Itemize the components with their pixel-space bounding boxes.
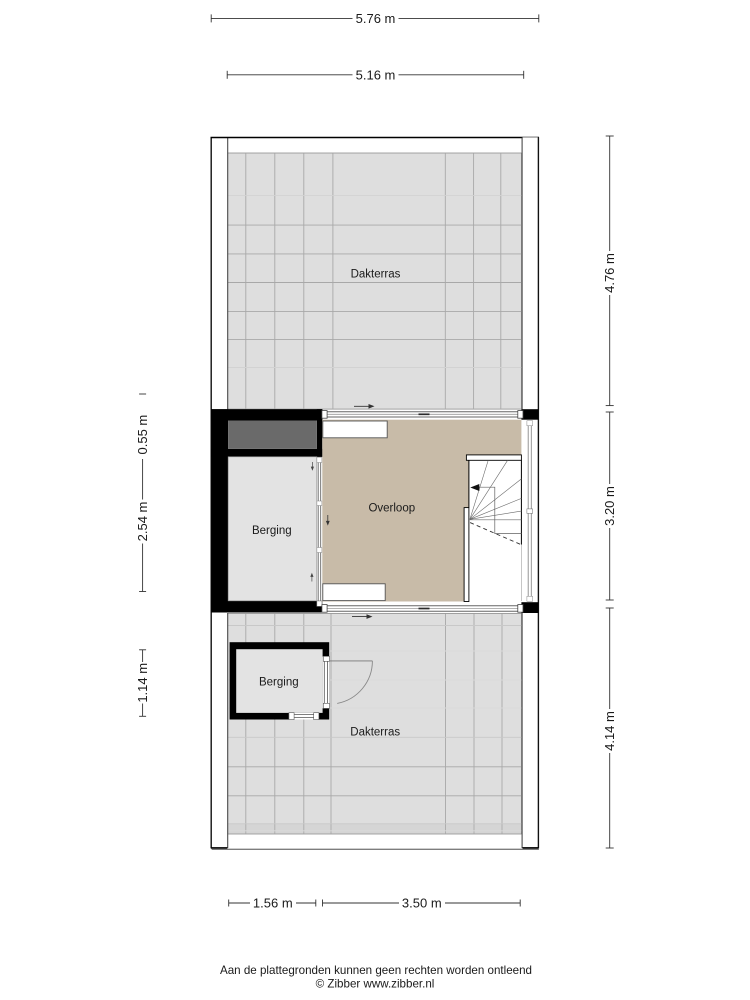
svg-text:Berging: Berging (259, 676, 299, 688)
svg-text:Aan de plattegronden kunnen ge: Aan de plattegronden kunnen geen rechten… (220, 964, 532, 977)
svg-text:1.14 m: 1.14 m (135, 663, 150, 703)
svg-text:Dakterras: Dakterras (350, 727, 400, 739)
svg-text:5.76 m: 5.76 m (356, 11, 396, 26)
svg-text:4.14 m: 4.14 m (602, 711, 617, 751)
svg-text:2.54 m: 2.54 m (135, 502, 150, 542)
svg-text:0.55 m: 0.55 m (135, 415, 150, 455)
svg-text:Overloop: Overloop (368, 503, 415, 515)
svg-text:3.50 m: 3.50 m (402, 896, 442, 911)
svg-text:© Zibber www.zibber.nl: © Zibber www.zibber.nl (316, 978, 435, 991)
svg-text:3.20 m: 3.20 m (602, 486, 617, 526)
svg-text:1.56 m: 1.56 m (253, 896, 293, 911)
svg-text:Berging: Berging (252, 525, 292, 537)
svg-text:5.16 m: 5.16 m (356, 67, 396, 82)
svg-text:4.76 m: 4.76 m (602, 253, 617, 293)
svg-text:Dakterras: Dakterras (351, 268, 401, 280)
